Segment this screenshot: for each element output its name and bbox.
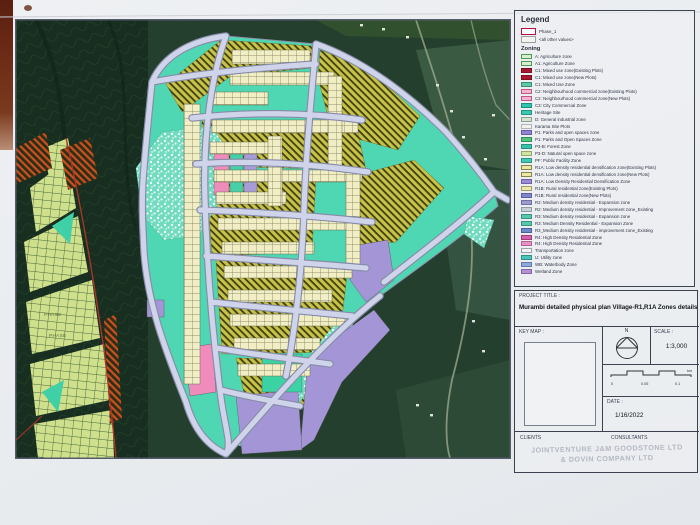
legend-item: Wetland Zone [521, 268, 694, 275]
legend-item: R1B: Rural residential zone(New Plots) [521, 192, 694, 199]
key-map-label: KEY MAP : [519, 329, 602, 335]
date-label: DATE : [607, 399, 699, 405]
legend-item: Phase_1 [521, 27, 694, 36]
legend-swatch [521, 36, 536, 43]
legend-swatch [521, 137, 532, 142]
legend-swatch [521, 248, 532, 253]
legend-swatch [521, 54, 532, 59]
key-map-cell: KEY MAP : [515, 327, 603, 431]
legend-item: R2: Medium density residential - Expansi… [521, 199, 694, 206]
phase-label: PHASE [44, 312, 62, 317]
legend-swatch [521, 221, 532, 226]
plan-sheet-photo: PHASE PHASE [0, 0, 700, 525]
legend-item: P3-B: Forest Zone [521, 143, 694, 150]
key-map-frame [524, 342, 596, 426]
legend-item: R4: High Density Residential Zone [521, 241, 694, 248]
legend-item: R4: High Density Residential Zone [521, 234, 694, 241]
legend-swatch [521, 200, 532, 205]
legend-swatch [521, 144, 532, 149]
title-block: PROJECT TITLE : Murambi detailed physica… [514, 290, 698, 473]
phase-label: PHASE [49, 333, 67, 338]
legend-swatch [521, 172, 532, 177]
legend-item: C1: Mixed Use Zone [521, 81, 694, 88]
legend-swatch [521, 89, 532, 94]
legend-item: <all other values> [521, 36, 694, 45]
legend-item: C2: Neighbourhood commercial zone(New Pl… [521, 95, 694, 102]
legend-swatch [521, 228, 532, 233]
legend-item: P3-D: Natural open space zone [521, 150, 694, 157]
scale-tick: 0 [611, 382, 613, 386]
legend-item: R1A: Low density residential densificati… [521, 171, 694, 178]
legend-zoning-list: A: Agriculture zone A1: Agriculture Zone… [521, 53, 694, 275]
legend-item: C3: City Commercial Zone [521, 102, 694, 109]
legend-swatch [521, 165, 532, 170]
scale-tick: 0.05 [641, 382, 648, 386]
legend-item: R3: Medium density residential - Expansi… [521, 213, 694, 220]
project-title: Murambi detailed physical plan Village-R… [519, 304, 699, 311]
legend-item: R3: Medium Density Residential - Expansi… [521, 220, 694, 227]
legend-swatch [521, 82, 532, 87]
legend-phase-list: Phase_1 <all other values> [521, 27, 694, 44]
legend-swatch [521, 207, 532, 212]
legend-swatch [521, 235, 532, 240]
legend-item: P1: Parks and open spaces zone [521, 130, 694, 137]
legend-item: Karama Site Plots [521, 123, 694, 130]
scale-cell: SCALE : 1:3,000 [651, 327, 699, 365]
scale-bar-cell: 0 0.05 0.1 km [603, 365, 699, 397]
legend-swatch [521, 75, 532, 80]
legend-swatch [521, 214, 532, 219]
zoning-map-panel: PHASE PHASE [16, 20, 510, 458]
scale-label: SCALE : [654, 329, 699, 335]
legend-item: A: Agriculture zone [521, 53, 694, 60]
legend-swatch [521, 193, 532, 198]
legend-swatch [521, 269, 532, 274]
legend-swatch [521, 117, 532, 122]
consultants-label: CONSULTANTS [611, 435, 647, 441]
legend-swatch [521, 262, 532, 267]
legend-zoning-header: Zoning [521, 46, 694, 52]
legend-swatch [521, 28, 536, 35]
date-cell: DATE : 1/16/2022 [603, 397, 699, 431]
zoning-map-svg: PHASE PHASE [16, 20, 510, 458]
legend-item: C1: Mixed use zone(Existing Plots) [521, 67, 694, 74]
scale-unit: km [687, 369, 692, 373]
legend-swatch [521, 241, 532, 246]
legend-item: C1: Mixed use zone(New Plots) [521, 74, 694, 81]
firm-name: JOINTVENTURE J&M GOODSTONE LTD & DOVIN C… [515, 442, 699, 467]
paper-stain [24, 5, 32, 11]
legend-item: D: General industrial zone [521, 116, 694, 123]
legend-swatch [521, 124, 532, 129]
legend-item: A1: Agriculture Zone [521, 60, 694, 67]
legend-swatch [521, 186, 532, 191]
legend-item: R1A: Low density residential densificati… [521, 164, 694, 171]
legend-item: PF: Public Facility Zone [521, 157, 694, 164]
scale-tick: 0.1 [675, 382, 680, 386]
legend-swatch [521, 68, 532, 73]
legend-swatch [521, 130, 532, 135]
date-value: 1/16/2022 [615, 412, 699, 419]
project-title-row: PROJECT TITLE : Murambi detailed physica… [515, 291, 699, 327]
legend-swatch [521, 61, 532, 66]
legend-item: R2: Medium density residential - Improve… [521, 206, 694, 213]
legend-box: Legend Phase_1 <all other values> Zoning… [514, 10, 695, 287]
north-arrow-cell: N [603, 327, 651, 365]
legend-item: U: Utility zone [521, 254, 694, 261]
legend-item: C2: Neighbourhood commercial zone(Existi… [521, 88, 694, 95]
legend-title: Legend [521, 15, 694, 24]
legend-swatch [521, 103, 532, 108]
legend-item: R1A: Low Density Residential Densificati… [521, 178, 694, 185]
legend-swatch [521, 179, 532, 184]
scale-bar-icon [603, 365, 699, 381]
legend-item: Heritage Site [521, 109, 694, 116]
legend-swatch [521, 158, 532, 163]
legend-swatch [521, 96, 532, 101]
legend-item: R3_Medium density residential - improvem… [521, 227, 694, 234]
scale-value: 1:3,000 [654, 343, 699, 350]
clients-label: CLIENTS [520, 435, 541, 441]
legend-swatch [521, 151, 532, 156]
legend-swatch [521, 110, 532, 115]
north-arrow-icon [612, 334, 642, 360]
legend-swatch [521, 255, 532, 260]
legend-item: WB: Waterbody Zone [521, 261, 694, 268]
legend-item: P1: Parks and Open Spaces Zone [521, 136, 694, 143]
legend-item: Transportation zone [521, 247, 694, 254]
clients-consultants-row: CLIENTS CONSULTANTS JOINTVENTURE J&M GOO… [515, 431, 699, 473]
legend-item: R1B: Rural residential zone(Existing Plo… [521, 185, 694, 192]
table-surface [0, 0, 13, 150]
project-title-label: PROJECT TITLE : [519, 293, 699, 299]
